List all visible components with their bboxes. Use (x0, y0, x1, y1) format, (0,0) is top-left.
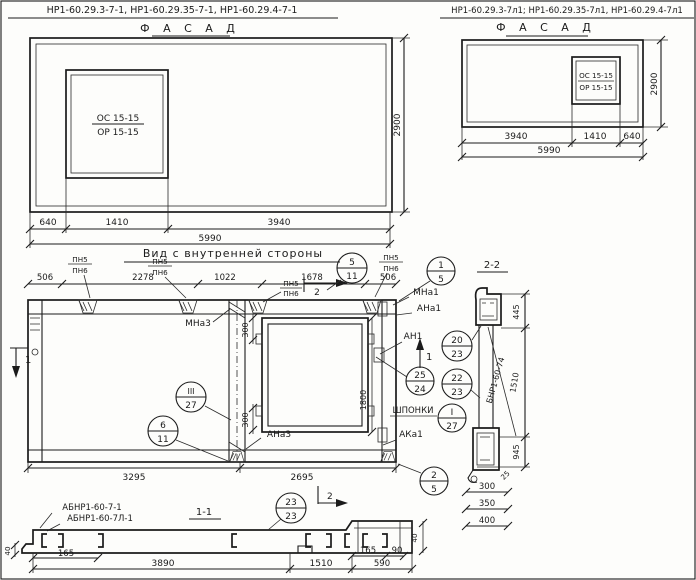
dim-5990: 5990 (538, 146, 561, 156)
facade-title-right: Ф А С А Д (496, 21, 596, 34)
blueprint-sheet: НР1-60.29.3-7-1, НР1-60.29.35-7-1, НР1-6… (0, 0, 696, 580)
pn6-label: ПН6 (383, 264, 399, 273)
marker-1-label: 1 (25, 355, 31, 366)
dim-40-right: 40 (410, 533, 419, 543)
pn5-label: ПН5 (72, 255, 87, 264)
balloon-den: 23 (285, 512, 296, 522)
facade-left-dims: 640 1410 3940 5990 2900 (26, 34, 410, 248)
drawing-canvas: НР1-60.29.3-7-1, НР1-60.29.35-7-1, НР1-6… (0, 0, 696, 580)
facade-left-view: ОС 15-15 ОР 15-15 640 1410 3940 5990 290… (26, 34, 410, 248)
profile-outline (22, 521, 412, 553)
dim-640: 640 (623, 132, 640, 142)
balloon-6-11: 6 11 (148, 416, 228, 461)
dim-25: 25 (499, 469, 512, 482)
dim-350: 350 (479, 499, 495, 509)
section-1-1-title: 1-1 (196, 507, 212, 518)
loop-label-3: ПН5 ПН6 (263, 279, 302, 302)
dim-165-left: 165 (58, 549, 74, 559)
dim-945: 945 (512, 444, 521, 459)
dim-40-left: 40 (3, 546, 12, 556)
dim-2695: 2695 (291, 473, 314, 483)
mna3-label: МНа3 (185, 319, 211, 329)
dim-5990: 5990 (199, 234, 222, 244)
dim-1800: 1800 (359, 390, 368, 410)
balloon-den: 5 (438, 275, 444, 285)
header-right: НР1-60.29.3-7л1; НР1-60.29.35-7л1, НР1-6… (440, 6, 694, 36)
lifting-loop (249, 300, 267, 313)
lifting-loop (79, 300, 97, 313)
lifting-loop (179, 300, 197, 313)
panel-ref-note: БНР1-60-74 (485, 356, 507, 404)
base-code-2: АБНР1-60-7Л-1 (67, 514, 133, 524)
dim-3940: 3940 (268, 218, 291, 228)
dim-90: 90 (392, 546, 403, 556)
dim-506: 506 (380, 273, 396, 283)
dim-590: 590 (374, 559, 390, 569)
section-2-2-title: 2-2 (484, 260, 500, 271)
dim-300: 300 (479, 482, 495, 492)
facade-right-view: ОС 15-15 ОР 15-15 3940 1410 640 5990 290… (458, 36, 668, 161)
balloon-20-23: 20 23 (442, 326, 481, 361)
section1-dims: 40 165 165 90 3890 1510 590 40 (3, 519, 427, 573)
panel-body (28, 300, 396, 462)
balloon-den: 24 (414, 385, 426, 395)
balloon-den: 27 (446, 422, 457, 432)
pn5-label: ПН5 (152, 257, 167, 266)
dim-1510: 1510 (310, 559, 333, 569)
balloon-III-27: III 27 (176, 382, 231, 420)
balloon-I-27: I 27 (438, 404, 466, 432)
pn6-label: ПН6 (152, 268, 168, 277)
section-2-2: 2-2 БНР1-60-74 445 1510 945 25 300 (462, 260, 530, 530)
window-mark-top: ОС 15-15 (97, 114, 139, 124)
window-mark-top: ОС 15-15 (579, 71, 613, 80)
facade-title-left: Ф А С А Д (140, 22, 240, 35)
ana3-label: АНа3 (267, 430, 291, 440)
section-2-marker-bottom: 2 (318, 486, 348, 507)
section2-stacked-dims: 300 350 400 (462, 482, 512, 530)
balloon-num: 5 (349, 258, 355, 268)
section-1-1: АБНР1-60-7-1 АБНР1-60-7Л-1 1-1 40 165 16… (3, 503, 427, 573)
panel-codes-right: НР1-60.29.3-7л1; НР1-60.29.35-7л1, НР1-6… (451, 6, 683, 16)
balloon-num: 25 (414, 371, 425, 381)
dim-300-bottom: 300 (241, 412, 250, 427)
balloon-num: I (451, 408, 454, 418)
balloon-num: 6 (160, 421, 166, 431)
inner-bottom-dims: 3295 2695 (24, 462, 400, 483)
marker-1-label: 1 (426, 352, 432, 363)
dim-2900: 2900 (650, 72, 660, 95)
loop-label-1: ПН5 ПН6 (68, 255, 92, 298)
inner-side-view: Вид с внутренней стороны ПН5 ПН6 ПН5 ПН6… (10, 247, 441, 507)
aka1-label: АКа1 (399, 430, 423, 440)
dim-445: 445 (512, 304, 521, 319)
dim-2900: 2900 (393, 113, 403, 136)
balloon-2-5: 2 5 (398, 464, 448, 495)
base-code-1: АБНР1-60-7-1 (62, 503, 121, 513)
dim-2278: 2278 (132, 273, 154, 283)
window-mark-bottom: ОР 15-15 (97, 128, 139, 138)
balloon-num: 1 (438, 261, 444, 271)
dim-640: 640 (39, 218, 56, 228)
balloon-den: 5 (431, 485, 437, 495)
dim-506: 506 (37, 273, 53, 283)
bottom-anchor (381, 452, 395, 462)
dim-3295: 3295 (123, 473, 146, 483)
pn6-label: ПН6 (72, 266, 88, 275)
anchor-labels: МНа3 АНа3 МНа1 АНа1 АН1 ШПОНКИ АКа1 (185, 288, 441, 449)
marker-2-label: 2 (327, 492, 333, 502)
an1-label: АН1 (404, 332, 423, 342)
dim-165-right: 165 (360, 546, 376, 556)
balloon-den: 23 (451, 350, 462, 360)
balloon-23-23: 23 23 (268, 493, 306, 530)
marker-2-label: 2 (314, 288, 320, 298)
header-left: НР1-60.29.3-7-1, НР1-60.29.35-7-1, НР1-6… (8, 5, 338, 36)
balloon-num: III (187, 387, 194, 396)
dim-1022: 1022 (214, 273, 236, 283)
facade-right-dims: 3940 1410 640 5990 2900 (458, 36, 668, 161)
dim-1510: 1510 (508, 372, 520, 394)
section-1-marker-right: 1 (416, 338, 432, 368)
dim-1410: 1410 (584, 132, 607, 142)
pn5-label: ПН5 (383, 253, 398, 262)
balloon-den: 11 (346, 272, 357, 282)
balloon-num: 2 (431, 471, 437, 481)
dim-300-top: 300 (241, 322, 250, 337)
dim-400: 400 (479, 516, 495, 526)
inner-view-title: Вид с внутренней стороны (143, 247, 323, 260)
shponki-label: ШПОНКИ (393, 406, 434, 416)
balloon-num: 23 (285, 498, 296, 508)
pn6-label: ПН6 (283, 289, 299, 298)
window-mark-right: ОС 15-15 ОР 15-15 (578, 71, 614, 92)
balloon-22-23: 22 23 (442, 369, 480, 399)
balloon-den: 23 (451, 388, 462, 398)
dim-3940: 3940 (505, 132, 528, 142)
balloon-den: 27 (185, 401, 196, 411)
dim-3890: 3890 (152, 559, 175, 569)
balloon-num: 22 (451, 374, 462, 384)
ana1-label: АНа1 (417, 304, 441, 314)
window-mark-bottom: ОР 15-15 (579, 83, 612, 92)
panel-codes-left: НР1-60.29.3-7-1, НР1-60.29.35-7-1, НР1-6… (47, 5, 298, 16)
window-mark-left: ОС 15-15 ОР 15-15 (92, 114, 144, 138)
dim-1410: 1410 (106, 218, 129, 228)
balloon-num: 20 (451, 336, 463, 346)
balloon-den: 11 (157, 435, 168, 445)
